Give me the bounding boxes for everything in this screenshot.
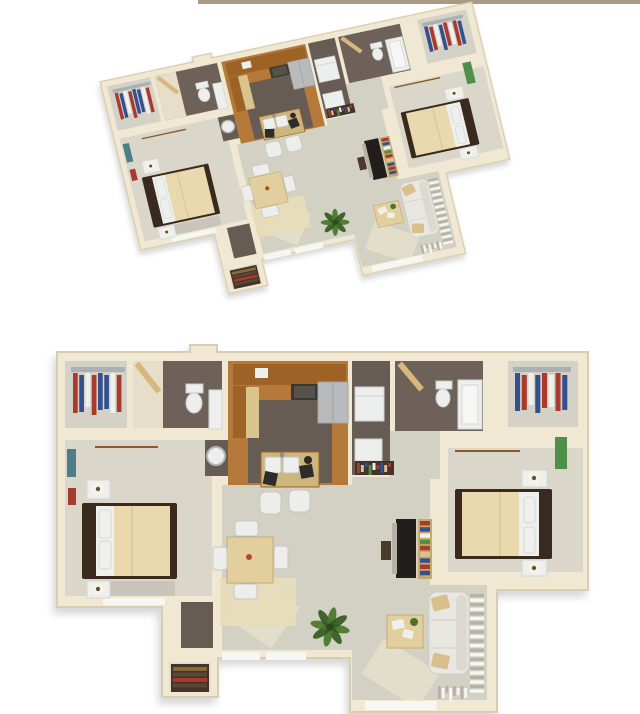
piano <box>396 519 416 578</box>
curtain-patio-strip <box>453 686 456 696</box>
curtain-patio-strip <box>461 686 464 699</box>
toilet-left-tank <box>186 384 203 393</box>
closet-right-clothes-strip <box>515 373 520 411</box>
window-bedroom-left <box>103 598 165 605</box>
curtain-right-wall-strip <box>470 617 484 620</box>
curtain-right-wall-strip <box>470 667 484 670</box>
curtain-right-wall-strip <box>470 658 484 661</box>
storage-shelf-items-strip <box>173 678 207 682</box>
dining-chair-left <box>213 547 227 570</box>
top-down-3d-floor-plan <box>57 345 588 712</box>
closet-right-clothes-strip <box>535 375 540 413</box>
bookshelf-living-books-strip <box>420 540 430 544</box>
hall-books-strip <box>369 465 372 475</box>
foyer-floor <box>181 602 213 648</box>
curtain-right-wall-strip <box>470 612 484 615</box>
lamp-left-a-base <box>96 487 100 491</box>
closet-right-clothes-strip <box>549 375 554 407</box>
window-patio <box>365 701 437 710</box>
curtain-patio-strip <box>449 688 452 701</box>
piano-bench <box>381 541 391 560</box>
lamp-left-a <box>92 483 104 495</box>
floorplan-marketing-image <box>0 0 640 714</box>
hall-books-strip <box>365 463 368 467</box>
isometric-3d-floor-plan <box>99 0 529 319</box>
curtain-right-wall-strip <box>470 603 484 606</box>
kitchen-counter-left-top <box>246 387 259 438</box>
bookshelf-living-books-strip <box>420 527 430 531</box>
closet-right-clothes-strip <box>529 373 534 405</box>
curtain-right-wall-strip <box>470 671 484 674</box>
bookshelf-living-books-strip <box>420 571 430 575</box>
curtain-patio-strip <box>442 688 445 698</box>
hall-floor <box>390 431 440 479</box>
hall-books-strip <box>376 465 379 469</box>
curtain-right-wall-strip <box>470 685 484 688</box>
closet-left-clothes-strip <box>79 375 84 412</box>
bookshelf-living-books-strip <box>420 552 430 556</box>
piano-keys <box>392 523 397 574</box>
curtain-right-wall-strip <box>470 626 484 629</box>
closet-left-clothes-strip <box>86 373 91 407</box>
island-faucet <box>280 453 285 458</box>
closet-left-clothes-strip <box>73 373 78 413</box>
bar-stool-2 <box>299 464 314 479</box>
island-sink-1 <box>265 457 281 473</box>
hall-books-strip <box>384 465 387 472</box>
island-sink-1 <box>262 117 276 130</box>
dining-table <box>249 171 289 208</box>
closet-left-shelf <box>71 367 125 372</box>
floorplan-render <box>0 0 640 714</box>
art-bedroom-left-2 <box>68 488 76 505</box>
curtain-right-wall-strip <box>470 639 484 642</box>
dryer <box>355 439 382 461</box>
bar-stool-1 <box>263 471 278 486</box>
coffee-papers-2 <box>387 212 394 218</box>
island-sink-2 <box>275 115 289 128</box>
dining-chair-top <box>235 521 258 536</box>
bookshelf-living-books-strip <box>420 558 430 562</box>
dining-chair-right <box>274 546 288 569</box>
island-sink-2 <box>283 457 299 473</box>
bookshelf-living-books-strip <box>420 546 430 550</box>
lamp-right-a-base <box>532 476 536 480</box>
kitchen-counter-left <box>233 386 248 438</box>
curtain-right-wall-strip <box>470 635 484 638</box>
storage-shelf-items-strip <box>173 667 207 671</box>
toilet-right-bowl <box>436 389 450 407</box>
window-living-1 <box>222 652 260 660</box>
island-kettle <box>304 456 312 464</box>
dining-chair-bottom <box>234 584 257 599</box>
rug-dining <box>220 578 296 626</box>
tub-left <box>209 390 222 429</box>
lamp-left-b <box>92 583 104 595</box>
toilet-right-tank <box>436 381 452 389</box>
coffee-table-plant <box>410 618 418 626</box>
stove-top <box>294 386 315 398</box>
curtain-right-wall-strip <box>470 649 484 652</box>
dining-table <box>227 537 273 583</box>
closet-left-clothes-strip <box>111 373 116 413</box>
closet-right-clothes-strip <box>562 375 567 410</box>
curtain-right-wall-strip <box>470 644 484 647</box>
washer <box>355 387 384 421</box>
closet-left-clothes-strip <box>104 375 109 409</box>
curtain-patio-strip <box>464 688 467 698</box>
closet-left-clothes-strip <box>117 375 122 412</box>
water-heater <box>207 447 225 465</box>
hall-books-strip <box>373 463 376 470</box>
tub-right-inner <box>462 385 478 424</box>
bookshelf-living-books-strip <box>420 533 430 537</box>
curtain-right-wall-strip <box>470 608 484 611</box>
couch-back <box>456 595 467 671</box>
storage-shelf-items-strip <box>173 673 207 677</box>
lamp-right-b-base <box>532 566 536 570</box>
hall-books-strip <box>357 463 360 473</box>
bed-left-pillow-2 <box>99 541 111 569</box>
curtain-right-wall-strip <box>470 599 484 602</box>
bar-stool-1 <box>265 129 274 138</box>
bed-right-pillow-2 <box>524 527 535 553</box>
closet-right-shelf <box>513 367 571 372</box>
curtain-right-wall-strip <box>470 621 484 624</box>
closet-left-clothes-strip <box>98 373 103 410</box>
closet-left-clothes-strip <box>92 375 97 415</box>
hall-books-strip <box>380 463 383 473</box>
curtain-right-wall-strip <box>470 689 484 692</box>
bed-right-pillow-1 <box>524 497 535 523</box>
curtain-right-wall-strip <box>470 680 484 683</box>
closet-right-clothes-strip <box>542 373 547 408</box>
bar-chair-1 <box>260 492 281 514</box>
lamp-right-b <box>528 562 540 574</box>
bar-chair-2 <box>289 490 310 512</box>
bed-left-pillow-1 <box>99 510 111 538</box>
lamp-left-b-base <box>96 587 100 591</box>
curtain-patio-strip <box>457 688 460 695</box>
closet-right-clothes-strip <box>522 375 527 410</box>
dining-centerpiece <box>246 554 252 560</box>
toilet-left-bowl <box>186 393 202 413</box>
storage-shelf-items-strip <box>173 684 207 688</box>
curtain-right-wall-strip <box>470 594 484 597</box>
curtain-right-wall-strip <box>470 630 484 633</box>
curtain-patio-strip <box>438 686 441 699</box>
bath-left-entry-floor <box>133 361 163 428</box>
bar-chair-2 <box>285 135 303 153</box>
plant-center <box>326 623 333 630</box>
bookshelf-living-books-strip <box>420 521 430 525</box>
window-living-2 <box>266 652 306 660</box>
hall-books-strip <box>361 465 364 472</box>
curtain-right-wall-strip <box>470 662 484 665</box>
art-bedroom-right <box>555 437 567 469</box>
bookshelf-living-books-strip <box>420 565 430 569</box>
curtain-patio-strip <box>446 686 449 693</box>
couch-pillow-2 <box>412 223 424 233</box>
rug-bedroom-left <box>103 581 175 596</box>
kitchen-appliance <box>255 368 268 378</box>
hall-books-strip <box>388 463 391 467</box>
closet-right-clothes-strip <box>556 373 561 411</box>
curtain-right-wall-strip <box>470 653 484 656</box>
art-bedroom-left-1 <box>67 449 76 477</box>
curtain-right-wall-strip <box>470 676 484 679</box>
lamp-right-a <box>528 472 540 484</box>
bar-chair-1 <box>265 141 283 159</box>
bookshelf-living-books <box>420 521 430 575</box>
